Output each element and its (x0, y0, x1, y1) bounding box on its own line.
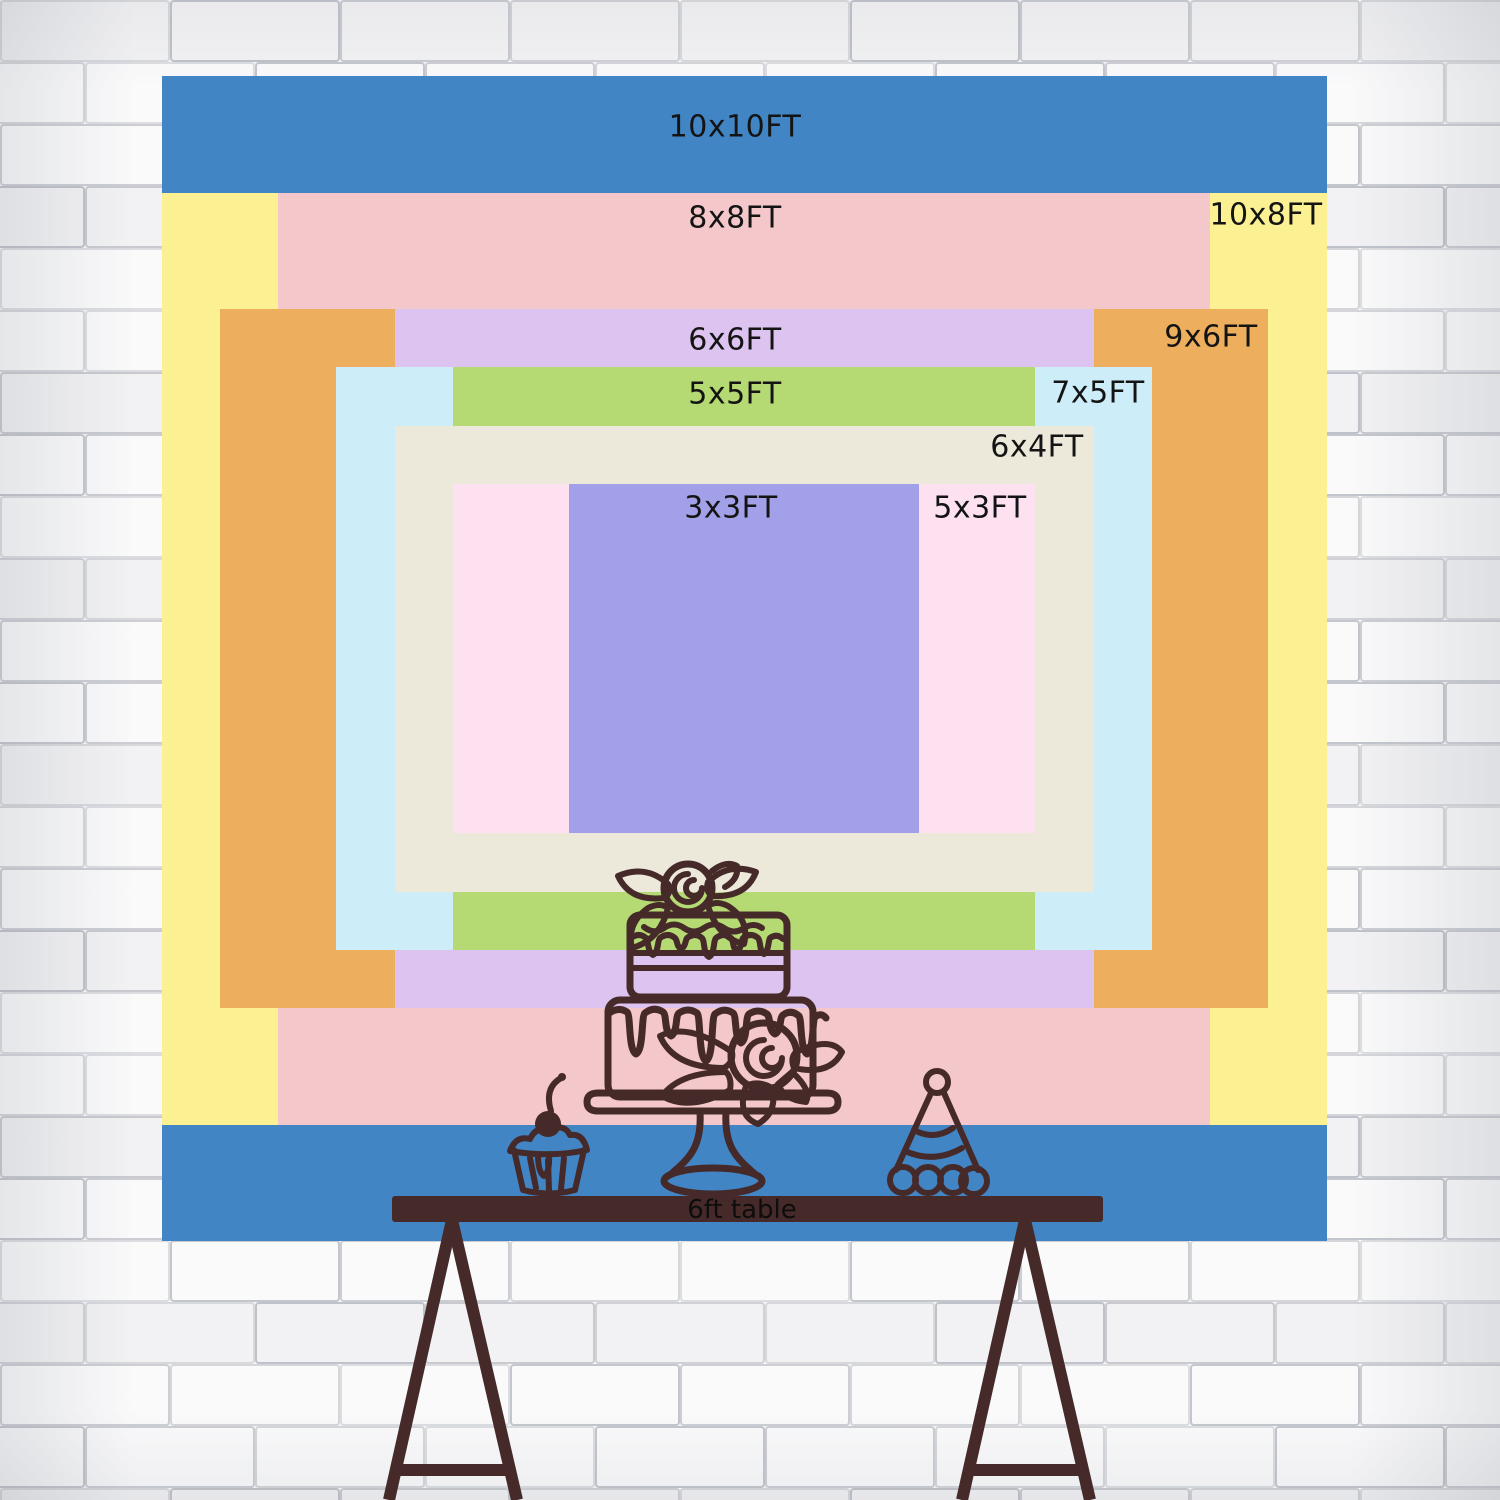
party-hat-illustration (890, 1071, 987, 1194)
cupcake-illustration (510, 1073, 587, 1194)
table-illustration (389, 1196, 1103, 1500)
cake-illustration (587, 864, 842, 1194)
line-art-illustration (0, 0, 1500, 1500)
cherry-icon (535, 1111, 561, 1137)
backdrop-size-chart-image: 10x10FT10x8FT8x8FT9x6FT6x6FT7x5FT5x5FT6x… (0, 0, 1500, 1500)
table-size-label: 6ft table (687, 1195, 797, 1225)
